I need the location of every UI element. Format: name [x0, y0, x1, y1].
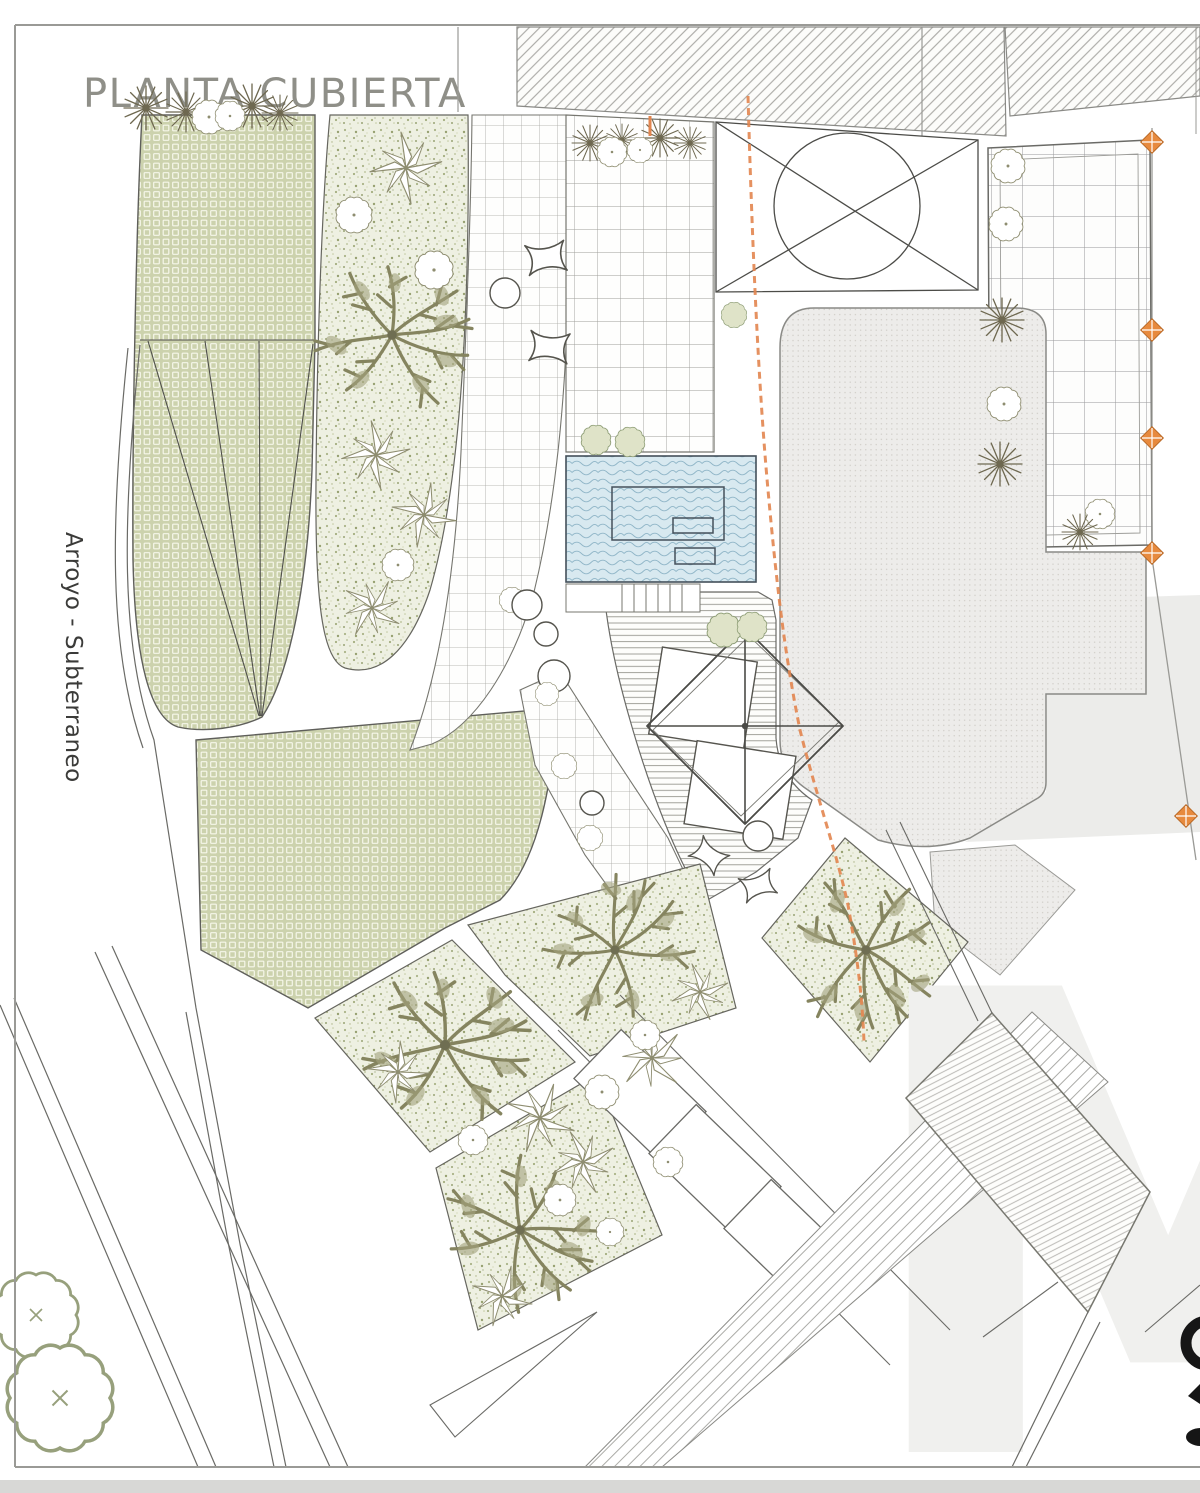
- side-table: [490, 278, 520, 308]
- plan-drawing: PLANTA CUBIERTA: [0, 0, 1200, 1493]
- pool-steps: [566, 584, 700, 612]
- deck-table: [743, 821, 773, 851]
- street-label: Arroyo - Subterraneo: [60, 532, 86, 783]
- bottom-strip: [0, 1480, 1200, 1493]
- swimming-pool: [566, 456, 756, 582]
- site-plan-canvas: PLANTA CUBIERTA: [0, 0, 1200, 1493]
- green-roof-upper: [133, 115, 315, 730]
- terrace-upper-middle: [566, 115, 714, 452]
